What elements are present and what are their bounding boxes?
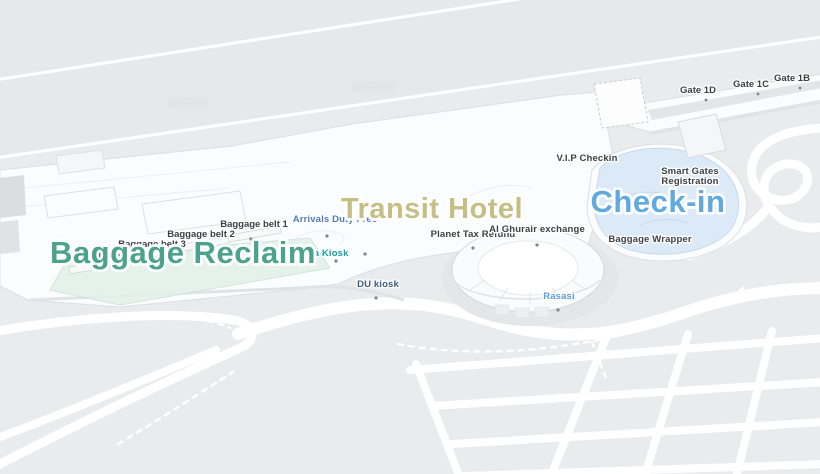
poi-label-du-kiosk[interactable]: DU kiosk <box>357 279 399 290</box>
poi-dot[interactable] <box>334 259 337 262</box>
poi-label-al-ghurair-exchange[interactable]: Al Ghurair exchange <box>489 224 585 235</box>
poi-dot[interactable] <box>363 252 366 255</box>
gate-label-1d[interactable]: Gate 1D <box>680 85 716 96</box>
map-canvas[interactable]: Gate 1D Gate 1C Gate 1B Baggage belt 1 B… <box>0 0 820 474</box>
region-label-transit-hotel[interactable]: Transit Hotel <box>341 193 523 225</box>
poi-dot[interactable] <box>556 308 559 311</box>
poi-dot[interactable] <box>535 243 538 246</box>
region-label-check-in[interactable]: Check-in <box>591 184 726 219</box>
poi-dot[interactable] <box>471 246 474 249</box>
poi-dot[interactable] <box>374 296 377 299</box>
gate-label-1b[interactable]: Gate 1B <box>774 73 810 84</box>
poi-label-vip-checkin[interactable]: V.I.P Checkin <box>556 153 617 164</box>
gate-label-1c[interactable]: Gate 1C <box>733 79 769 90</box>
poi-label-baggage-wrapper[interactable]: Baggage Wrapper <box>608 234 692 245</box>
gate-dot[interactable] <box>799 87 802 90</box>
poi-label-rasasi[interactable]: Rasasi <box>543 291 575 302</box>
poi-dot[interactable] <box>325 234 328 237</box>
gate-dot[interactable] <box>757 93 760 96</box>
gate-dot[interactable] <box>705 99 708 102</box>
pier-building <box>594 78 648 128</box>
region-label-baggage-reclaim[interactable]: Baggage Reclaim <box>50 235 316 270</box>
